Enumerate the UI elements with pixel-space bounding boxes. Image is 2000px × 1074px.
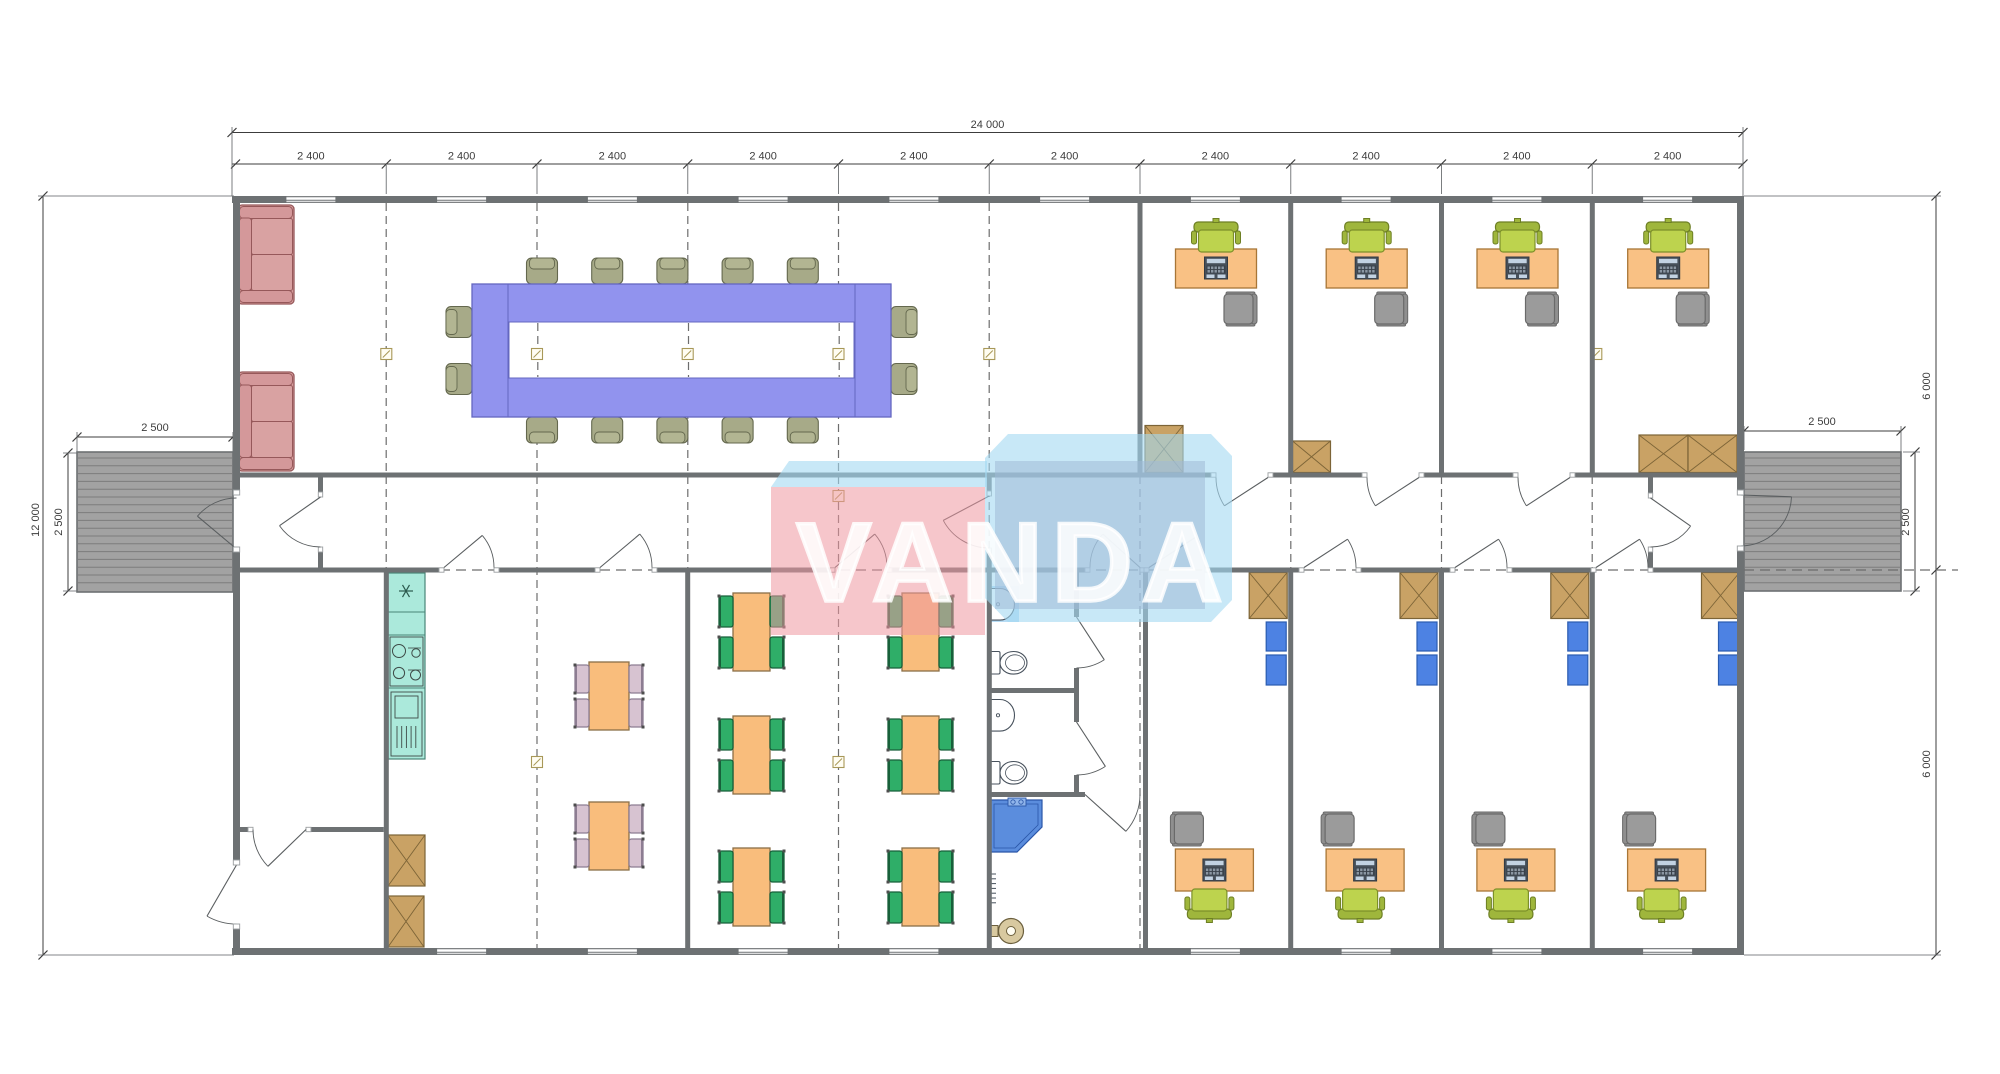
svg-text:2 500: 2 500 <box>141 422 169 434</box>
svg-text:6 000: 6 000 <box>1921 372 1933 400</box>
svg-text:2 400: 2 400 <box>1654 151 1682 163</box>
svg-text:2 400: 2 400 <box>1352 151 1380 163</box>
svg-text:2 500: 2 500 <box>53 508 65 536</box>
svg-text:2 400: 2 400 <box>448 151 476 163</box>
svg-text:VANDA: VANDA <box>797 500 1232 625</box>
svg-text:2 400: 2 400 <box>1051 151 1079 163</box>
svg-text:2 400: 2 400 <box>1202 151 1230 163</box>
svg-text:6 000: 6 000 <box>1921 750 1933 778</box>
svg-text:2 500: 2 500 <box>1900 508 1912 536</box>
svg-text:2 400: 2 400 <box>599 151 627 163</box>
svg-text:2 400: 2 400 <box>297 151 325 163</box>
svg-text:2 400: 2 400 <box>1503 151 1531 163</box>
svg-text:2 400: 2 400 <box>749 151 777 163</box>
svg-text:2 500: 2 500 <box>1808 416 1836 428</box>
svg-text:2 400: 2 400 <box>900 151 928 163</box>
svg-text:24 000: 24 000 <box>971 119 1005 131</box>
svg-text:12 000: 12 000 <box>30 503 42 537</box>
